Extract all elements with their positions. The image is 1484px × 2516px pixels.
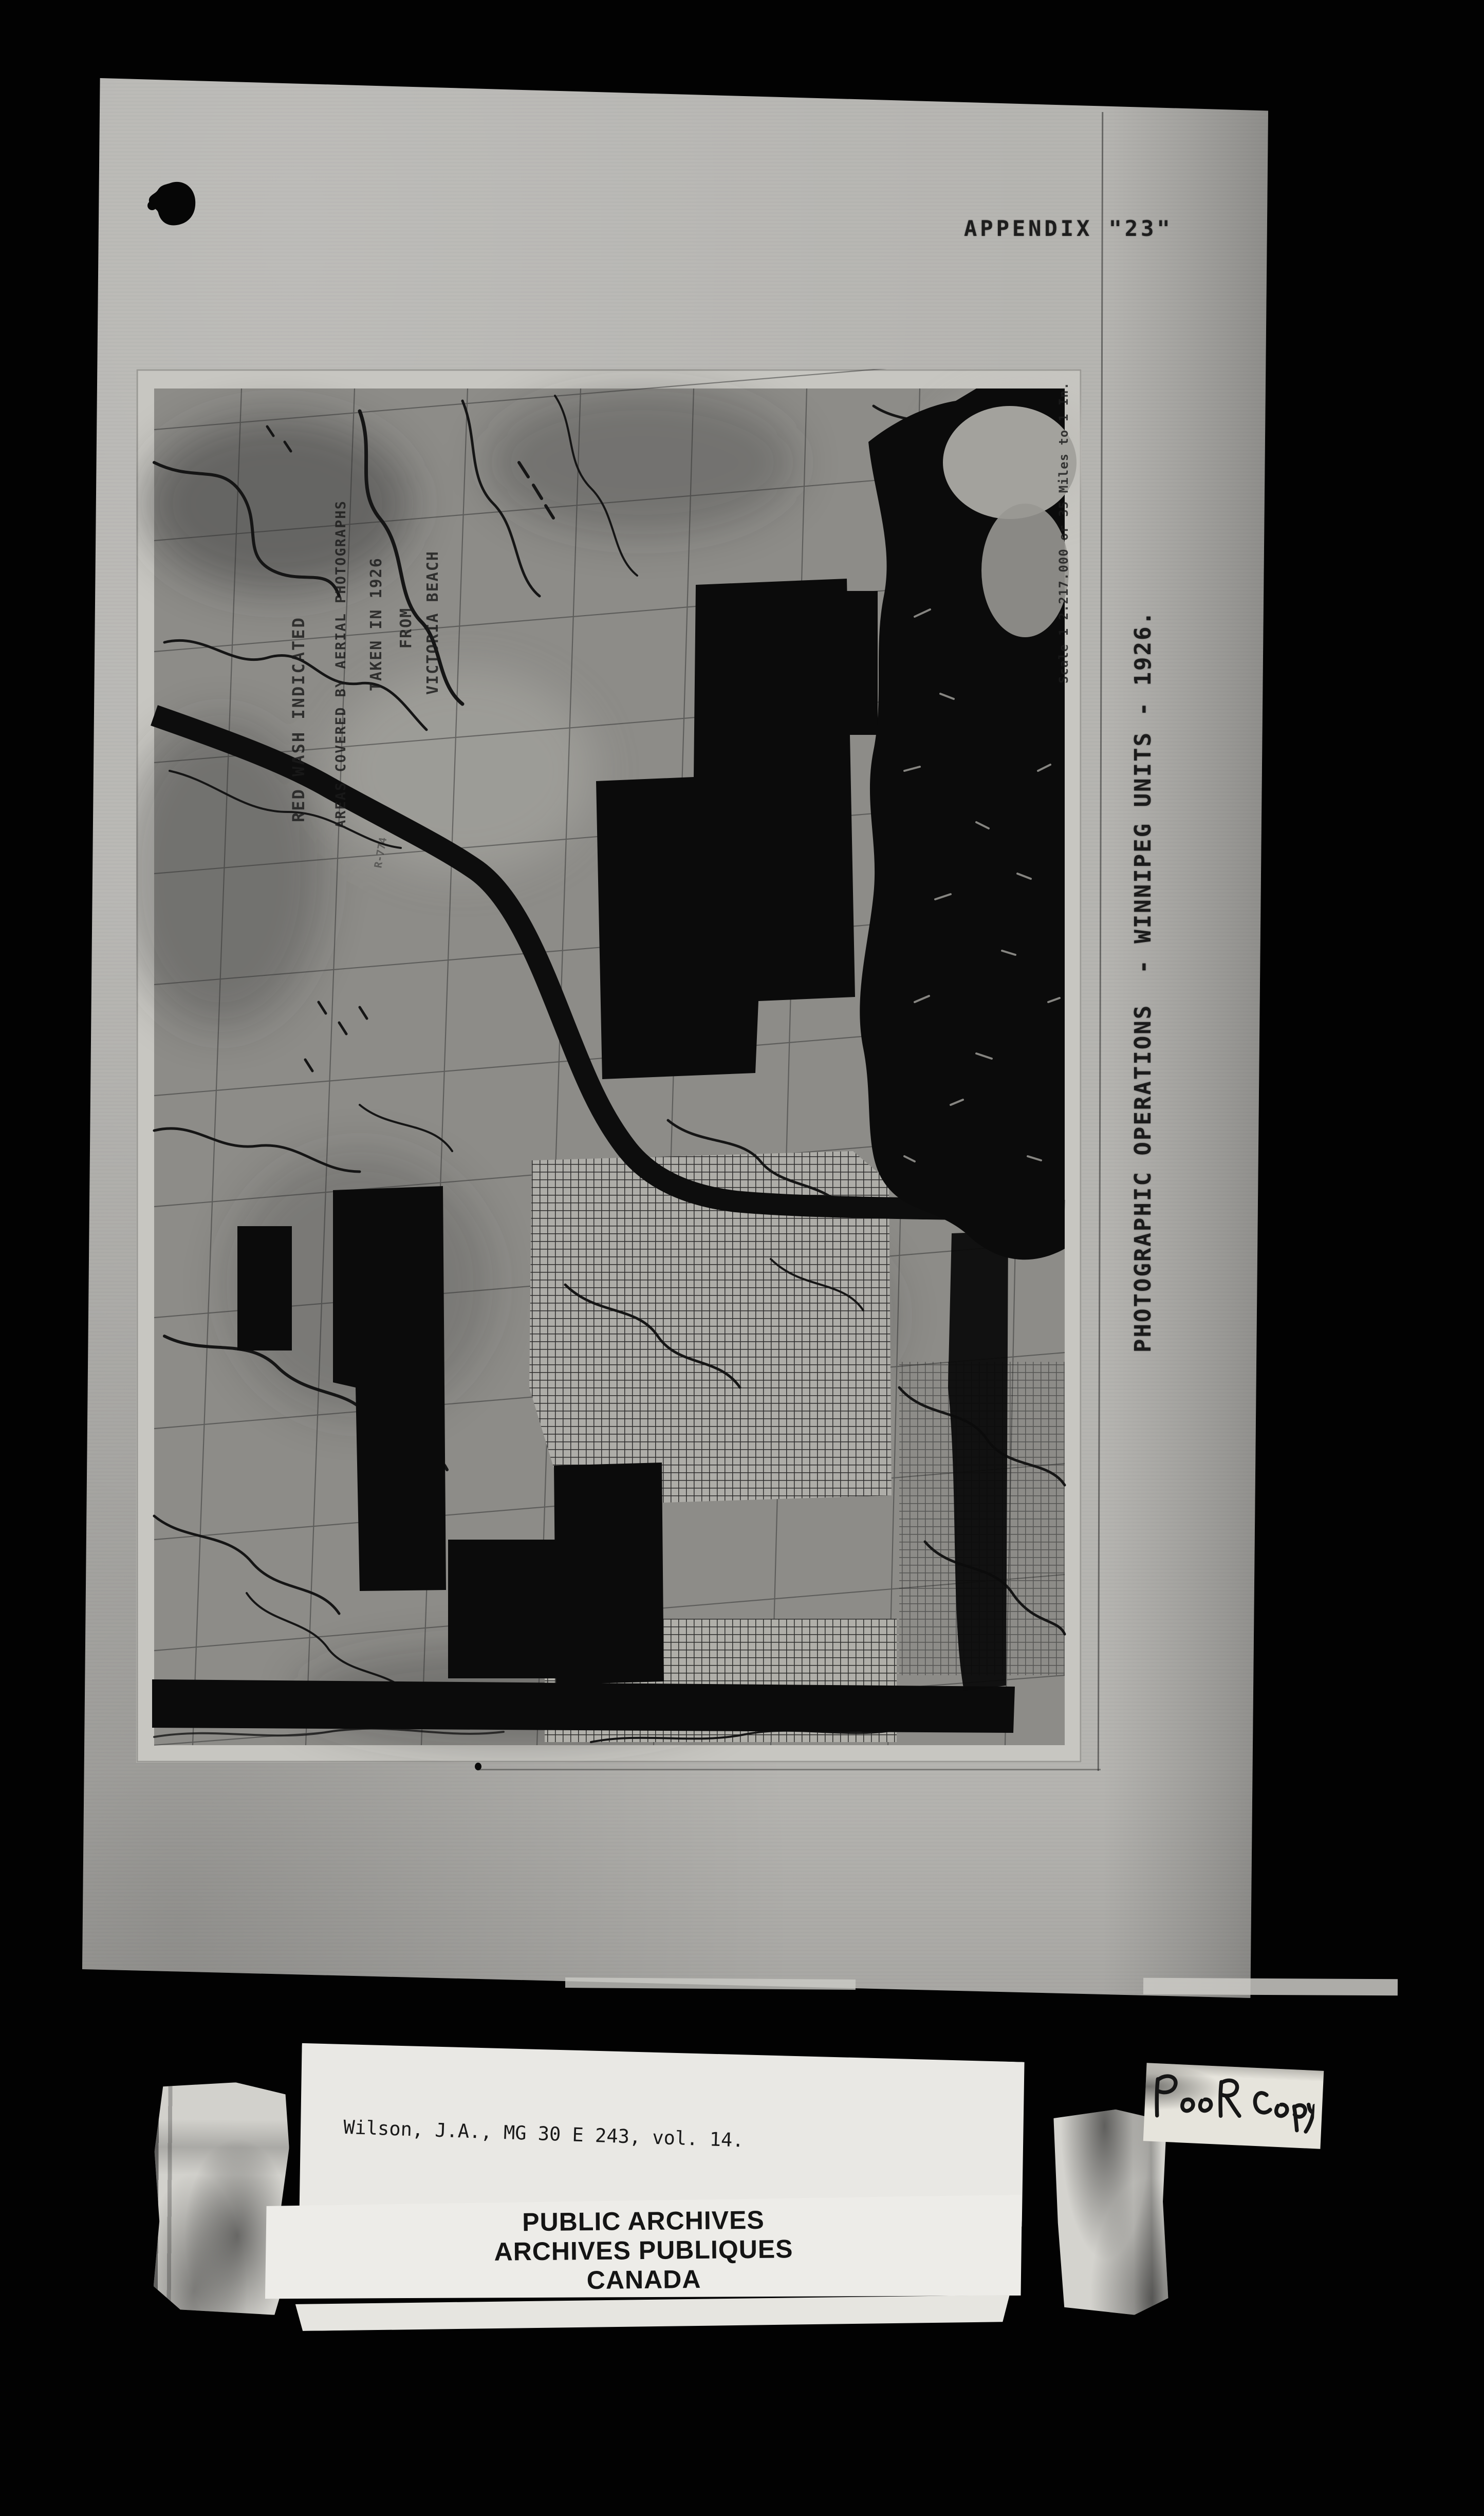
ink-blot [144,176,206,237]
legend-column-3: TAKEN IN 1926 [367,557,385,691]
poor-copy-handwriting [1144,2063,1316,2138]
legend-column-1: RED WASH INDICATED [289,616,308,822]
legend-column-4: FROM [397,607,415,649]
paper-corner-sliver [1143,1978,1398,1996]
archives-stamp-text: PUBLIC ARCHIVES ARCHIVES PUBLIQUES CANAD… [264,2203,1023,2298]
ink-dot [475,1763,481,1770]
catalog-line-1: Wilson, J.A., MG 30 E 243, vol. 14. [343,2113,985,2163]
legend-column-2: AREAS COVERED BY AERIAL PHOTOGRAPHS [333,500,349,828]
side-caption-vertical: PHOTOGRAPHIC OPERATIONS - WINNIPEG UNITS… [1130,604,1159,1353]
archives-stamp-card: PUBLIC ARCHIVES ARCHIVES PUBLIQUES CANAD… [264,2195,1023,2303]
paper-crease-horizontal [477,1769,1101,1770]
poor-copy-slip [1143,2063,1324,2149]
map-scale-note: Scale 1 2.217.000 or 35 Miles to 1 In. [1056,382,1071,683]
paper-edge-sliver [565,1977,856,1990]
map-photo-artwork: RED WASH INDICATED AREAS COVERED BY AERI… [136,369,1082,1763]
map-photograph: RED WASH INDICATED AREAS COVERED BY AERI… [136,369,1082,1763]
paper-crease-vertical [1098,112,1103,1771]
legend-column-5: VICTORIA BEACH [424,550,442,695]
appendix-label: APPENDIX "23" [964,216,1173,241]
blank-label-strip [295,2295,1010,2331]
archival-page: APPENDIX "23" PHOTOGRAPHIC OPERATIONS - … [82,78,1268,1998]
scan-background: APPENDIX "23" PHOTOGRAPHIC OPERATIONS - … [0,0,1484,2516]
east-dark-band [860,388,1077,1260]
